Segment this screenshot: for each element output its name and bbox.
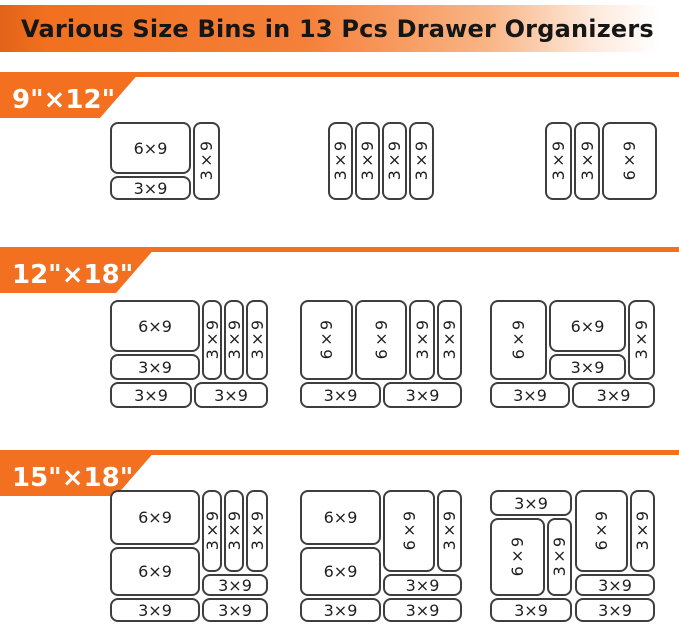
bin-size-label: 6×9 [372,320,391,359]
bin-size-label: 3×9 [406,601,440,620]
bin-size-label: 3×9 [134,179,168,198]
section-size-label: 12"×18" [0,247,156,293]
bin-3x9: 3×9 [202,598,268,622]
bin-3x9: 3×9 [575,598,655,622]
bin-size-label: 3×9 [550,537,569,576]
bin-3x9: 3×9 [328,122,353,200]
bin-3x9: 3×9 [630,490,655,572]
bin-size-label: 6×9 [138,317,172,336]
bin-6x9: 6×9 [110,122,191,174]
bin-6x9: 6×9 [490,300,547,380]
bin-6x9: 6×9 [300,490,381,545]
bin-size-label: 3×9 [324,601,358,620]
bin-size-label: 3×9 [598,576,632,595]
bin-size-label: 3×9 [218,601,252,620]
bin-3x9: 3×9 [224,300,244,380]
bin-3x9: 3×9 [194,382,268,408]
bin-size-label: 3×9 [358,141,377,180]
bin-size-label: 3×9 [218,576,252,595]
bin-3x9: 3×9 [490,490,572,516]
bin-size-label: 6×9 [317,320,336,359]
bin-size-label: 3×9 [134,386,168,405]
bin-3x9: 3×9 [545,122,572,200]
bin-size-label: 3×9 [413,320,432,359]
bin-6x9: 6×9 [575,490,628,572]
bin-size-label: 3×9 [324,386,358,405]
bin-size-label: 3×9 [549,141,568,180]
bin-size-label: 6×9 [509,320,528,359]
bin-size-label: 3×9 [406,386,440,405]
bin-size-label: 3×9 [440,320,459,359]
bin-size-label: 3×9 [248,320,267,359]
bin-size-label: 3×9 [138,358,172,377]
bin-3x9: 3×9 [409,122,434,200]
bin-6x9: 6×9 [110,547,200,596]
bin-arrangement: 3×93×96×9 [545,122,657,200]
bin-3x9: 3×9 [437,300,462,380]
page-title: Various Size Bins in 13 Pcs Drawer Organ… [0,15,654,43]
bin-size-label: 3×9 [225,511,244,550]
bin-arrangement: 6×96×93×93×93×93×9 [490,300,655,408]
bin-size-label: 3×9 [571,358,605,377]
bin-3x9: 3×9 [202,300,222,380]
bin-6x9: 6×9 [549,300,626,352]
bin-size-label: 6×9 [134,139,168,158]
bin-arrangement: 6×93×93×93×93×93×93×9 [110,300,268,408]
bin-3x9: 3×9 [246,300,268,380]
bin-3x9: 3×9 [549,354,626,380]
bin-3x9: 3×9 [628,300,655,380]
bin-size-label: 3×9 [331,141,350,180]
bin-size-label: 3×9 [513,386,547,405]
bin-3x9: 3×9 [224,490,244,572]
bin-3x9: 3×9 [547,518,572,596]
bin-size-label: 6×9 [620,141,639,180]
bin-arrangement: 3×96×93×96×93×93×93×93×9 [490,490,655,622]
bin-size-label: 6×9 [592,511,611,550]
bin-3x9: 3×9 [202,574,268,596]
bin-size-label: 3×9 [597,386,631,405]
bin-6x9: 6×9 [490,518,545,596]
bin-size-label: 3×9 [248,511,267,550]
bin-arrangement: 6×96×96×93×93×93×93×9 [300,490,462,622]
bin-3x9: 3×9 [110,176,191,200]
bin-3x9: 3×9 [574,122,600,200]
bin-size-label: 3×9 [514,601,548,620]
bin-3x9: 3×9 [383,382,462,408]
bin-size-label: 3×9 [598,601,632,620]
bin-3x9: 3×9 [409,300,435,380]
bin-size-label: 6×9 [324,562,358,581]
bin-6x9: 6×9 [602,122,657,200]
bin-3x9: 3×9 [572,382,655,408]
bin-arrangement: 6×96×93×93×93×93×93×93×9 [110,490,268,622]
bin-3x9: 3×9 [383,574,462,596]
bin-size-label: 6×9 [324,508,358,527]
bin-6x9: 6×9 [300,300,353,380]
header-banner: Various Size Bins in 13 Pcs Drawer Organ… [0,5,679,52]
bin-3x9: 3×9 [246,490,268,572]
bin-6x9: 6×9 [300,547,381,596]
bin-size-label: 6×9 [400,511,419,550]
bin-3x9: 3×9 [300,598,381,622]
bin-size-label: 3×9 [440,511,459,550]
drawer-organizer-infographic: Various Size Bins in 13 Pcs Drawer Organ… [0,0,679,627]
bin-size-label: 3×9 [633,511,652,550]
bin-3x9: 3×9 [110,354,200,380]
section-size-label: 9"×12" [0,72,140,118]
bin-6x9: 6×9 [110,300,200,352]
bin-3x9: 3×9 [575,574,655,596]
bin-6x9: 6×9 [110,490,200,545]
bin-3x9: 3×9 [110,598,200,622]
bin-size-label: 3×9 [197,141,216,180]
bin-size-label: 3×9 [632,320,651,359]
bin-size-label: 3×9 [214,386,248,405]
bin-size-label: 3×9 [412,141,431,180]
bin-size-label: 3×9 [203,320,222,359]
bin-size-label: 6×9 [138,562,172,581]
bin-3x9: 3×9 [300,382,381,408]
bin-3x9: 3×9 [383,598,462,622]
bin-arrangement: 3×93×93×93×9 [328,122,434,200]
bin-size-label: 3×9 [514,494,548,513]
bin-6x9: 6×9 [355,300,407,380]
bin-size-label: 6×9 [571,317,605,336]
bin-3x9: 3×9 [355,122,380,200]
bin-3x9: 3×9 [490,598,572,622]
bin-size-label: 3×9 [578,141,597,180]
bin-6x9: 6×9 [383,490,435,572]
bin-size-label: 3×9 [406,576,440,595]
bin-size-label: 3×9 [138,601,172,620]
bin-arrangement: 6×93×93×9 [110,122,220,200]
bin-3x9: 3×9 [437,490,462,572]
bin-size-label: 3×9 [203,511,222,550]
bin-3x9: 3×9 [202,490,222,572]
bin-size-label: 6×9 [508,537,527,576]
bin-size-label: 3×9 [385,141,404,180]
bin-3x9: 3×9 [110,382,192,408]
bin-3x9: 3×9 [193,122,220,200]
bin-3x9: 3×9 [382,122,407,200]
bin-size-label: 6×9 [138,508,172,527]
bin-size-label: 3×9 [225,320,244,359]
bin-arrangement: 6×96×93×93×93×93×9 [300,300,462,408]
bin-3x9: 3×9 [490,382,570,408]
